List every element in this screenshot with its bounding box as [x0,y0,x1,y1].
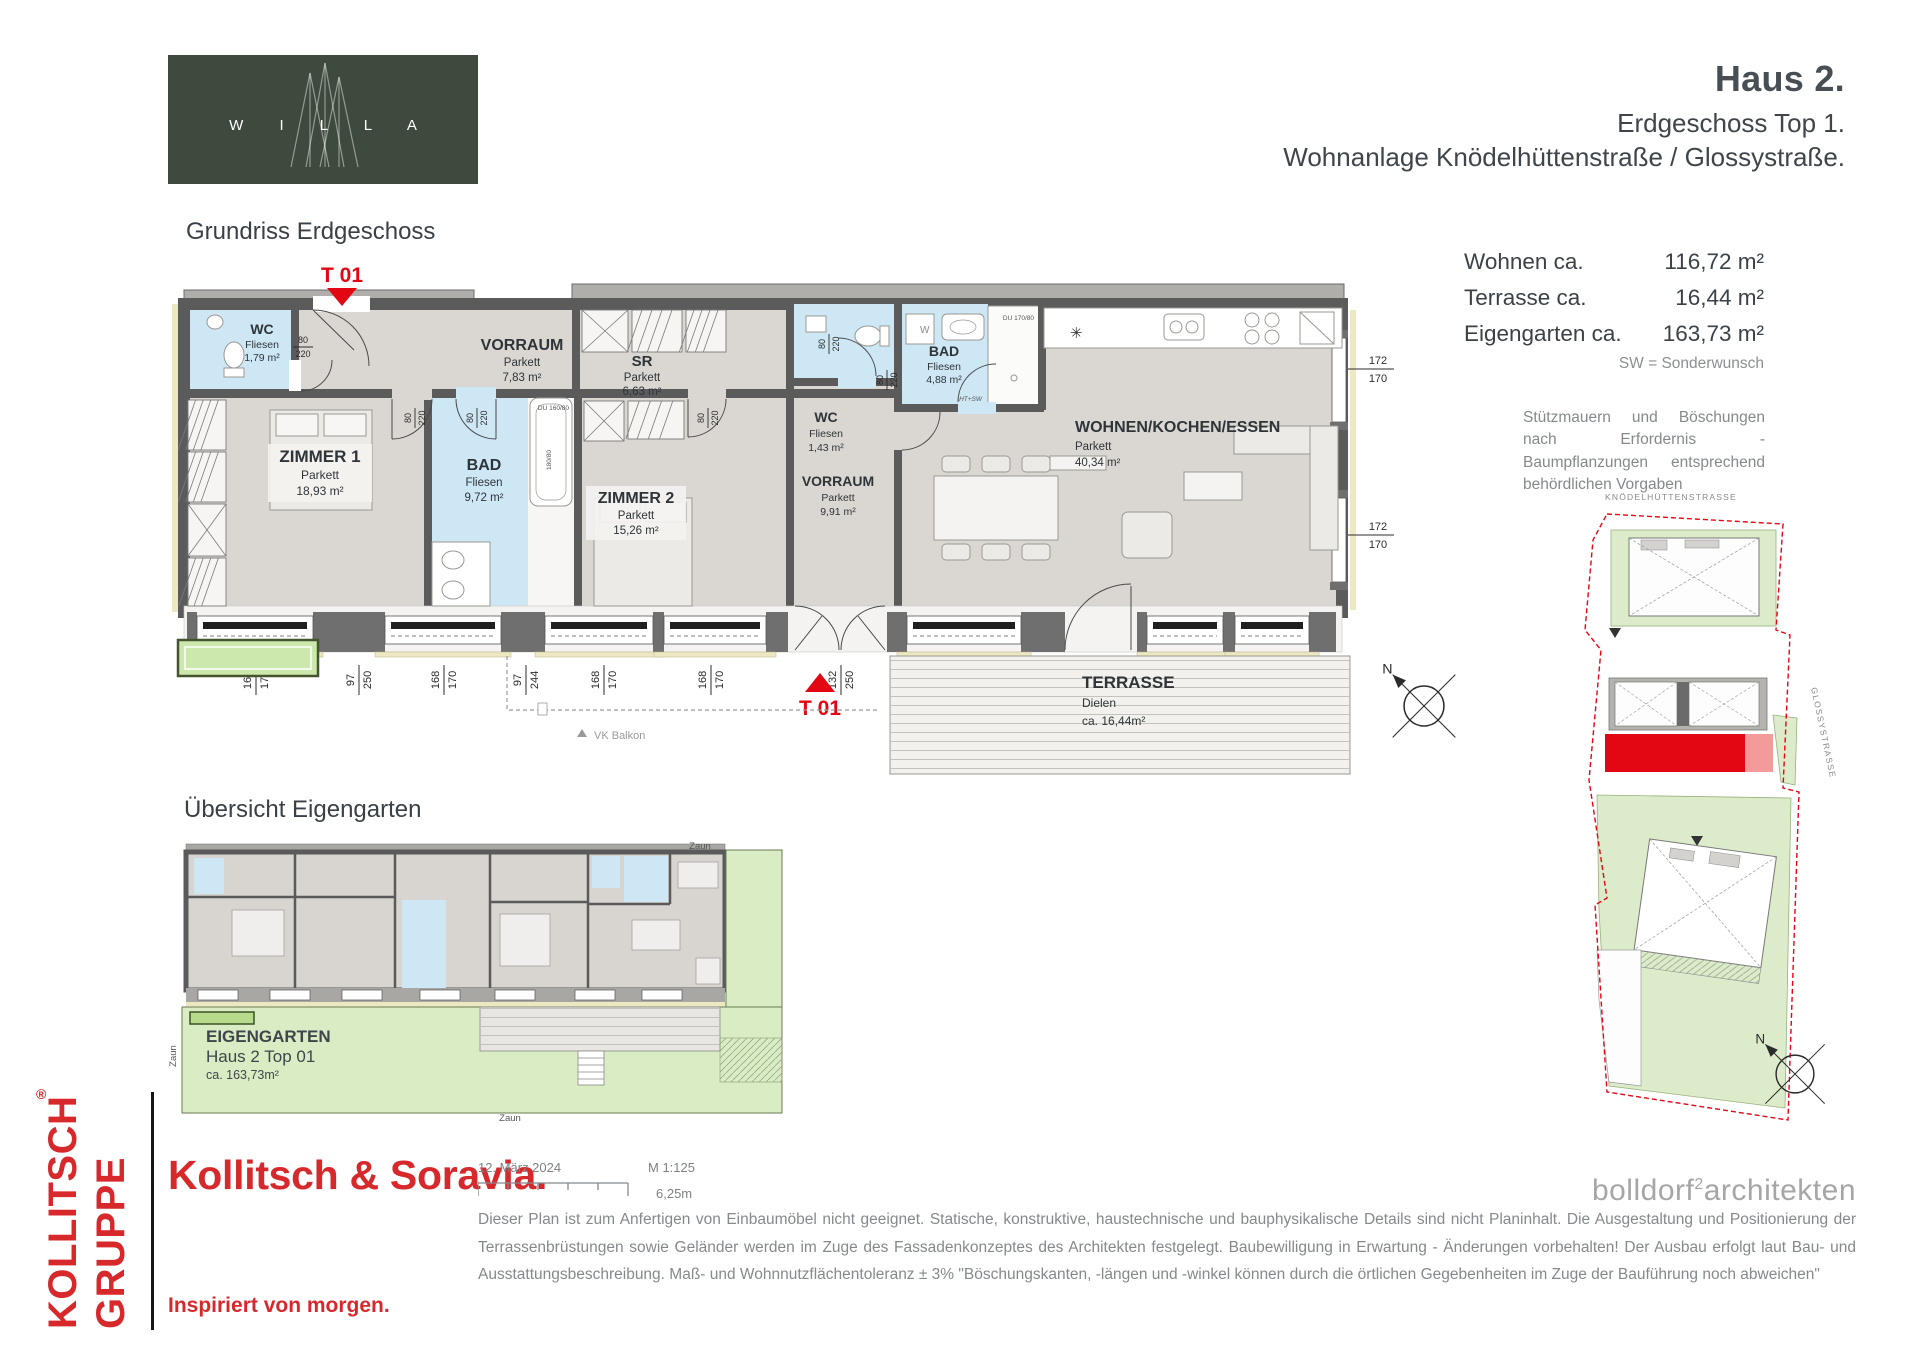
room-floor: Parkett [504,357,541,369]
sheet-header: Haus 2. Erdgeschoss Top 1. Wohnanlage Kn… [1283,58,1845,174]
kollitsch-logo-line1: KOLLITSCH [40,1096,86,1329]
dim-top: 172 [1369,355,1387,367]
room-area: 6,63 m² [623,386,662,398]
washer-label: W [920,325,930,336]
room-floor: Fliesen [245,339,279,351]
area-value: 163,73 m² [1663,316,1764,352]
svg-text:170: 170 [607,671,619,689]
dim-top: 172 [1369,521,1387,533]
room-area: 18,93 m² [296,484,343,498]
tub-label: 180/80 [546,450,553,470]
scale-length: 6,25m [656,1186,692,1201]
garden-overview-drawing: EIGENGARTEN Haus 2 Top 01 ca. 163,73m² Z… [180,842,800,1142]
room-name: ZIMMER 2 [598,490,675,507]
dishwasher-icon: ✳ [1070,325,1083,342]
room-name: VORRAUM [481,337,564,354]
plan-sheet: W I L L A Haus 2. Erdgeschoss Top 1. Woh… [0,0,1920,1357]
room-name: ZIMMER 1 [279,447,360,466]
logo-wordmark: W I L L A [168,117,478,134]
willa-logo: W I L L A [168,55,478,184]
street-label-right: GLOSSYSTRASSE [1809,686,1838,779]
svg-text:220: 220 [479,410,489,425]
entry-marker-icon [1609,628,1621,638]
sw-legend: SW = Sonderwunsch [1464,355,1764,373]
room-floor: Parkett [624,372,661,384]
svg-text:220: 220 [831,336,841,351]
fence-label-top: Zaun [689,841,711,852]
svg-text:97: 97 [345,674,357,686]
table-row: Eigengarten ca. 163,73 m² [1464,316,1764,352]
floorplan-section-title: Grundriss Erdgeschoss [186,218,435,246]
svg-text:250: 250 [362,671,374,689]
svg-text:170: 170 [447,671,459,689]
scale-bar [478,1180,648,1198]
project-name: Wohnanlage Knödelhüttenstraße / Glossyst… [1283,140,1845,174]
mini-building [186,844,726,1007]
ht-sw-label: HT+SW [959,396,983,403]
room-area: 9,72 m² [465,492,504,504]
garden-section-title: Übersicht Eigengarten [184,796,421,824]
svg-text:220: 220 [710,410,720,425]
svg-text:168: 168 [697,671,709,689]
area-summary-table: Wohnen ca. 116,72 m² Terrasse ca. 16,44 … [1464,244,1764,373]
svg-text:220: 220 [417,410,427,425]
sheet-subtitle: Erdgeschoss Top 1. [1283,106,1845,140]
room-name: VORRAUM [802,473,874,489]
north-label: N [1382,662,1392,678]
plan-date: 12. März 2024 [478,1160,561,1175]
highlighted-unit [1605,734,1773,772]
room-name: BAD [929,343,959,359]
room-floor: Fliesen [809,428,843,440]
room-name: WOHNEN/KOCHEN/ESSEN [1075,419,1280,436]
svg-text:80: 80 [465,413,475,423]
architect-name-a: bolldorf [1592,1174,1694,1207]
street-label-top: KNÖDELHÜTTENSTRASSE [1605,492,1737,502]
area-value: 16,44 m² [1675,280,1764,316]
terrace: TERRASSE Dielen ca. 16,44m² [890,656,1350,774]
room-area: 7,83 m² [503,372,542,384]
room-area: 1,79 m² [244,352,280,364]
area-value: 116,72 m² [1664,244,1764,280]
fence-label-left: Zaun [168,1045,179,1067]
sheet-title: Haus 2. [1283,58,1845,100]
north-label: N [1755,1031,1765,1046]
shower-label: DU 160/80 [538,405,569,412]
plan-scale: M 1:125 [648,1160,695,1175]
garden-unit: Haus 2 Top 01 [206,1047,315,1066]
disclaimer-text: Dieser Plan ist zum Anfertigen von Einba… [478,1206,1856,1289]
architect-wordmark: bolldorf2architekten [1592,1174,1856,1208]
room-floor: Parkett [618,510,655,522]
room-area: 9,91 m² [820,506,856,518]
site-building-bottom [1632,839,1777,984]
svg-text:80: 80 [696,413,706,423]
svg-text:170: 170 [714,671,726,689]
room-name: SR [632,353,653,370]
architect-sup: 2 [1694,1176,1703,1193]
room-floor: Fliesen [927,361,961,373]
svg-text:220: 220 [295,349,310,359]
table-row: Wohnen ca. 116,72 m² [1464,244,1764,280]
svg-text:80: 80 [817,339,827,349]
t01-bottom-label: T 01 [799,697,841,720]
garden-name: EIGENGARTEN [206,1027,331,1046]
room-name: WC [814,409,837,425]
shower-label: DU 170/80 [1003,315,1034,322]
dim-bottom: 170 [1369,373,1387,385]
brand-slogan: Inspiriert von morgen. [168,1294,390,1318]
footer-divider [151,1092,154,1330]
terrace-floor: Dielen [1082,696,1116,710]
dim-bottom: 170 [1369,539,1387,551]
room-area: 40,34 m² [1075,457,1121,469]
room-area: 15,26 m² [613,525,659,537]
site-building-middle [1609,678,1767,730]
svg-text:80: 80 [298,335,308,345]
room-floor: Fliesen [465,477,502,489]
t01-top-label: T 01 [321,264,363,287]
svg-text:97: 97 [512,674,524,686]
svg-text:168: 168 [590,671,602,689]
room-name: WC [250,321,273,337]
site-building-top [1629,538,1759,616]
terrace-area: ca. 16,44m² [1082,714,1145,728]
street-label-right-text: GLOSSYSTRASSE [1809,686,1838,779]
north-compass-icon: N [1382,662,1455,738]
svg-text:250: 250 [844,671,856,689]
svg-text:80: 80 [403,413,413,423]
kollitsch-logo-line2: GRUPPE [88,1157,134,1329]
garden-area: ca. 163,73m² [206,1068,279,1082]
room-floor: Parkett [1075,441,1112,453]
floorplan-drawing: WC Fliesen 1,79 m² ZIMMER 1 Parkett 18,9… [170,260,1500,790]
planter-box [178,640,318,676]
room-name: BAD [467,457,502,474]
svg-text:80: 80 [875,375,885,385]
svg-text:244: 244 [529,671,541,689]
room-area: 4,88 m² [926,374,962,386]
site-plan: KNÖDELHÜTTENSTRASSE [1545,480,1845,1140]
terrace-name: TERRASSE [1082,673,1175,692]
site-steps [1597,950,1641,1086]
table-row: Terrasse ca. 16,44 m² [1464,280,1764,316]
svg-text:168: 168 [430,671,442,689]
room-floor: Parkett [301,468,340,482]
svg-text:220: 220 [889,372,899,387]
room-floor: Parkett [821,492,854,504]
room-area: 1,43 m² [808,442,844,454]
architect-name-b: architekten [1704,1174,1856,1207]
vk-balkon-label: VK Balkon [594,730,645,742]
fence-label-bottom: Zaun [499,1113,521,1124]
